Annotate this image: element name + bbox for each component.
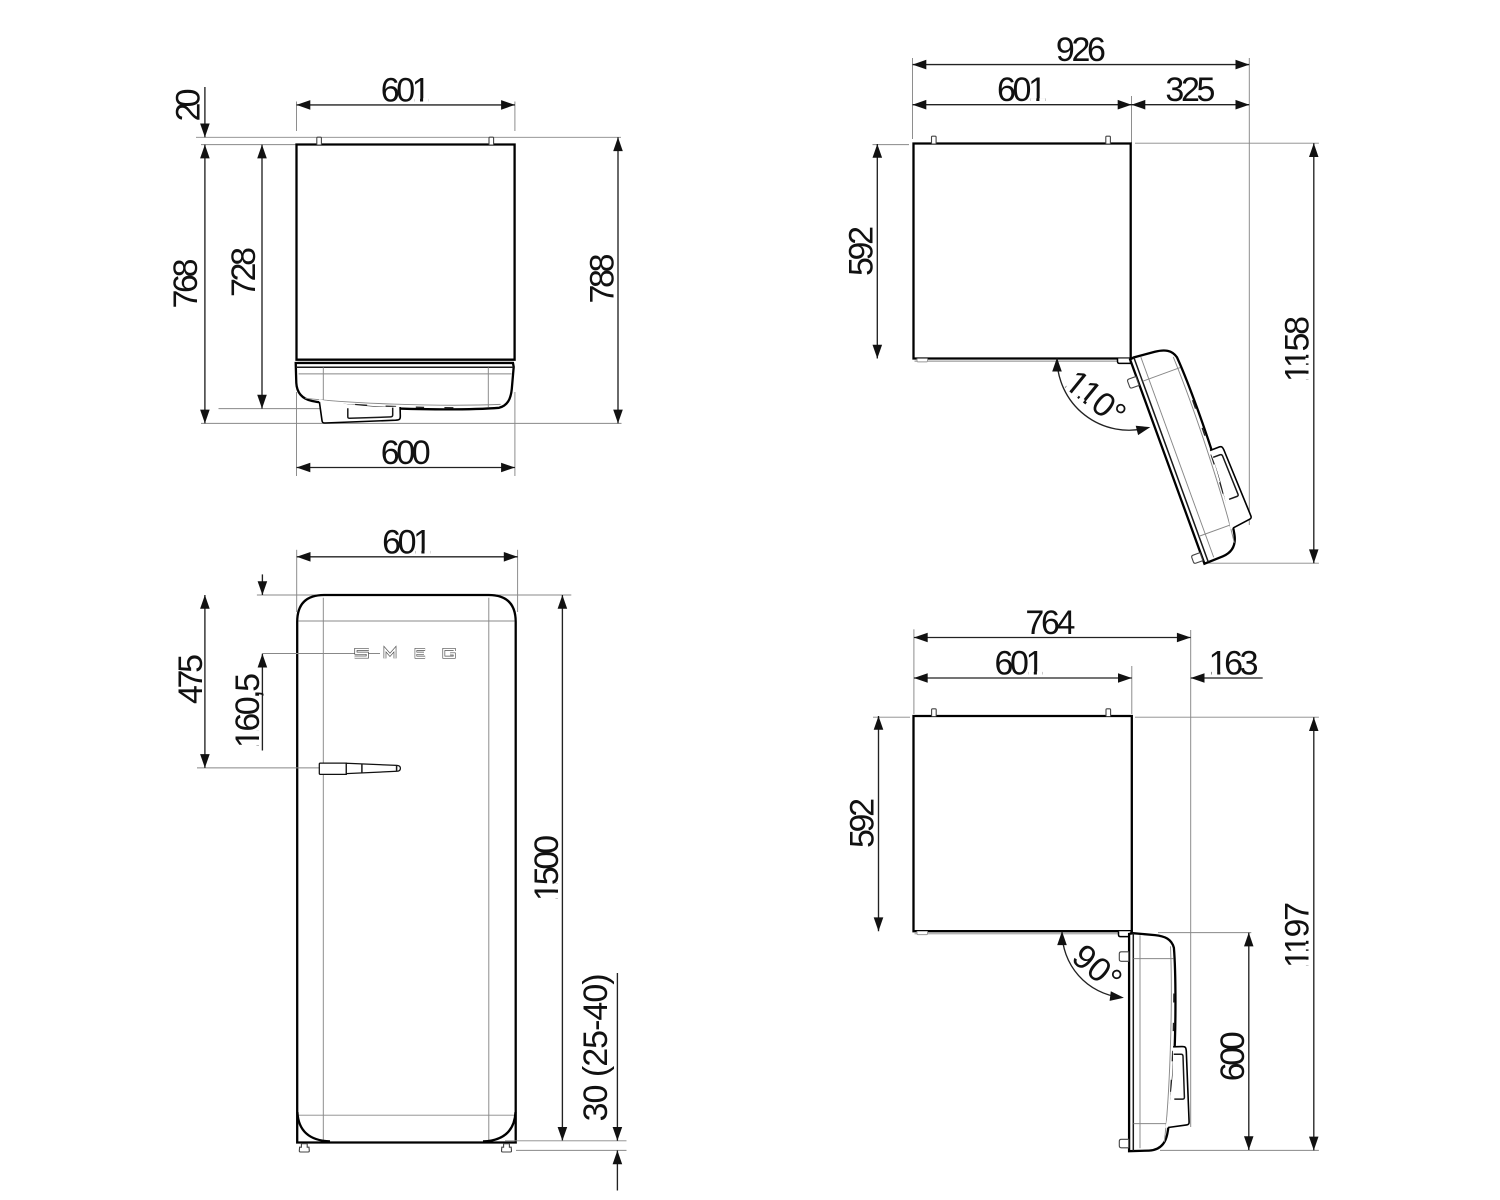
svg-text:600: 600	[381, 434, 431, 472]
svg-text:30 (25-40): 30 (25-40)	[577, 973, 615, 1121]
svg-text:592: 592	[843, 226, 881, 276]
svg-text:926: 926	[1056, 31, 1106, 69]
svg-text:768: 768	[167, 259, 205, 309]
svg-text:788: 788	[584, 254, 622, 304]
svg-text:475: 475	[172, 654, 210, 704]
svg-text:601: 601	[997, 71, 1047, 109]
svg-text:163: 163	[1209, 645, 1259, 683]
svg-text:1197: 1197	[1279, 902, 1317, 968]
svg-text:601: 601	[381, 71, 431, 109]
svg-text:325: 325	[1165, 71, 1215, 109]
svg-text:764: 764	[1025, 604, 1075, 642]
svg-text:160,5: 160,5	[229, 673, 267, 748]
svg-text:728: 728	[225, 247, 263, 297]
svg-text:600: 600	[1214, 1031, 1252, 1081]
svg-text:1158: 1158	[1279, 316, 1317, 382]
svg-text:20: 20	[170, 89, 208, 122]
svg-text:601: 601	[995, 645, 1045, 683]
svg-text:592: 592	[844, 798, 882, 848]
svg-text:1500: 1500	[528, 835, 566, 901]
svg-text:601: 601	[382, 523, 432, 561]
